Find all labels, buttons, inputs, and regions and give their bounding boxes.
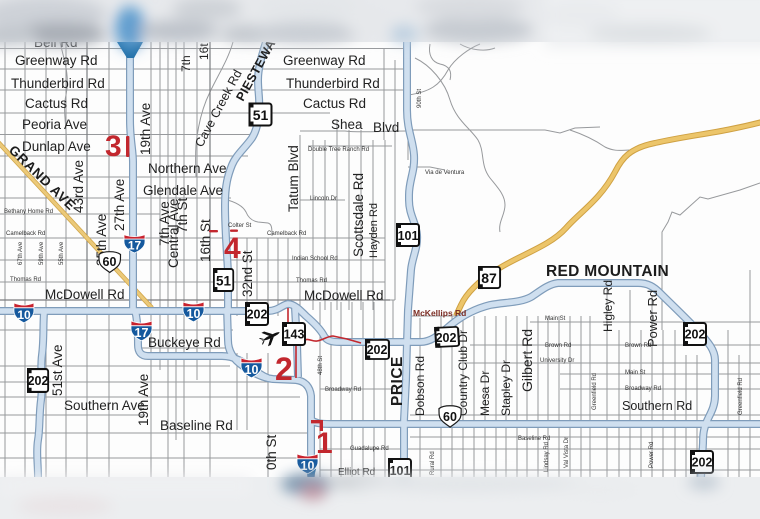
- svg-text:27th Ave: 27th Ave: [112, 179, 127, 231]
- svg-text:Southern Rd: Southern Rd: [622, 399, 692, 413]
- svg-text:Hayden Rd: Hayden Rd: [368, 203, 380, 258]
- svg-text:10: 10: [245, 363, 259, 377]
- svg-text:Baseline Rd: Baseline Rd: [518, 436, 550, 442]
- svg-text:17: 17: [135, 326, 149, 340]
- svg-text:Broadway Rd: Broadway Rd: [625, 386, 661, 392]
- svg-text:Lincoln Dr: Lincoln Dr: [310, 196, 337, 202]
- svg-text:Via de Ventura: Via de Ventura: [425, 170, 465, 176]
- svg-text:10: 10: [301, 459, 315, 473]
- svg-text:Thomas Rd: Thomas Rd: [296, 278, 327, 284]
- svg-text:Main St: Main St: [625, 370, 646, 376]
- svg-text:Power Rd: Power Rd: [645, 290, 660, 347]
- svg-text:Mesa Dr: Mesa Dr: [478, 371, 492, 416]
- svg-text:48th St: 48th St: [318, 356, 324, 375]
- svg-text:Dobson Rd: Dobson Rd: [413, 356, 427, 416]
- svg-text:32nd St: 32nd St: [240, 250, 255, 297]
- svg-text:143: 143: [284, 328, 305, 342]
- svg-text:19th Ave: 19th Ave: [138, 103, 153, 155]
- svg-text:19th Ave: 19th Ave: [136, 374, 151, 426]
- svg-text:Broadway Rd: Broadway Rd: [325, 387, 361, 393]
- svg-text:Guadalupe Rd: Guadalupe Rd: [350, 446, 389, 452]
- svg-text:Stapley Dr: Stapley Dr: [499, 360, 513, 416]
- svg-text:Brown Rd: Brown Rd: [625, 343, 651, 349]
- svg-text:Tatum Blvd: Tatum Blvd: [286, 145, 301, 212]
- svg-text:202: 202: [685, 328, 706, 342]
- svg-text:0th St: 0th St: [264, 434, 279, 470]
- svg-text:Higley Rd: Higley Rd: [601, 280, 615, 332]
- svg-text:51: 51: [216, 274, 232, 289]
- svg-text:202: 202: [247, 308, 268, 322]
- svg-text:90th St: 90th St: [417, 89, 423, 108]
- svg-text:Gilbert Rd: Gilbert Rd: [519, 329, 535, 392]
- svg-text:Brown Rd: Brown Rd: [545, 343, 571, 349]
- svg-text:Greenway Rd: Greenway Rd: [283, 53, 366, 68]
- svg-text:59th Ave: 59th Ave: [39, 241, 45, 265]
- svg-text:Cactus Rd: Cactus Rd: [303, 96, 366, 111]
- svg-text:202: 202: [367, 343, 388, 357]
- svg-text:McDowell Rd: McDowell Rd: [304, 288, 384, 303]
- svg-text:Dunlap Ave: Dunlap Ave: [22, 139, 91, 154]
- svg-text:Greenfield Rd: Greenfield Rd: [592, 373, 598, 410]
- svg-text:16t: 16t: [197, 43, 211, 60]
- svg-text:Baseline Rd: Baseline Rd: [160, 418, 233, 433]
- svg-text:Greenway Rd: Greenway Rd: [15, 53, 98, 68]
- svg-text:Shea: Shea: [331, 117, 363, 132]
- svg-text:202: 202: [692, 456, 713, 470]
- svg-text:Rural Rd: Rural Rd: [430, 451, 436, 475]
- svg-text:University Dr: University Dr: [540, 358, 574, 364]
- svg-text:Southern Ave: Southern Ave: [64, 398, 145, 413]
- svg-text:Lindsay Rd: Lindsay Rd: [544, 442, 550, 472]
- svg-text:10: 10: [187, 307, 201, 321]
- svg-text:4: 4: [224, 232, 241, 265]
- svg-text:Thomas Rd: Thomas Rd: [10, 277, 41, 283]
- svg-text:60: 60: [443, 410, 457, 424]
- svg-text:Peoria Ave: Peoria Ave: [22, 117, 87, 132]
- svg-text:McDowell Rd: McDowell Rd: [45, 287, 125, 302]
- svg-text:Greenfield Rd: Greenfield Rd: [738, 378, 744, 415]
- svg-text:Main St: Main St: [545, 316, 566, 322]
- svg-text:Camelback Rd: Camelback Rd: [6, 231, 45, 237]
- svg-text:Val Vista Dr: Val Vista Dr: [564, 437, 570, 468]
- svg-text:17: 17: [128, 239, 142, 253]
- svg-text:2: 2: [275, 351, 293, 387]
- svg-text:Buckeye Rd: Buckeye Rd: [148, 335, 221, 350]
- svg-text:51: 51: [253, 107, 269, 123]
- svg-text:Power Rd: Power Rd: [649, 442, 655, 468]
- svg-text:McKellips Rd: McKellips Rd: [413, 308, 466, 318]
- svg-text:67th Ave: 67th Ave: [18, 241, 24, 265]
- svg-text:Bethany Home Rd: Bethany Home Rd: [4, 209, 53, 215]
- svg-text:60: 60: [103, 255, 117, 269]
- svg-text:55th Ave: 55th Ave: [59, 241, 65, 265]
- svg-text:16th St: 16th St: [198, 219, 213, 262]
- svg-text:Thunderbird Rd: Thunderbird Rd: [11, 76, 105, 91]
- svg-text:7th St: 7th St: [175, 197, 190, 233]
- svg-text:87: 87: [481, 270, 497, 286]
- svg-text:Camelback Rd: Camelback Rd: [267, 231, 306, 237]
- svg-text:Indian School Rd: Indian School Rd: [292, 256, 338, 262]
- svg-text:7th: 7th: [179, 55, 193, 72]
- svg-text:Scottsdale Rd: Scottsdale Rd: [351, 173, 366, 257]
- svg-text:PRICE: PRICE: [389, 356, 406, 406]
- svg-text:Blvd: Blvd: [373, 120, 399, 135]
- svg-text:Glendale Ave: Glendale Ave: [143, 183, 223, 198]
- svg-text:RED MOUNTAIN: RED MOUNTAIN: [546, 263, 669, 280]
- svg-text:Northern Ave: Northern Ave: [148, 161, 227, 176]
- svg-text:101: 101: [398, 229, 419, 243]
- svg-text:Colter St: Colter St: [228, 223, 252, 229]
- svg-text:Double Tree Ranch Rd: Double Tree Ranch Rd: [308, 147, 369, 153]
- svg-text:3: 3: [105, 130, 122, 163]
- svg-text:1: 1: [316, 427, 333, 460]
- svg-text:202: 202: [436, 331, 457, 345]
- svg-text:Cactus Rd: Cactus Rd: [25, 96, 88, 111]
- svg-text:202: 202: [28, 374, 49, 388]
- svg-text:Thunderbird Rd: Thunderbird Rd: [286, 76, 380, 91]
- svg-text:51st Ave: 51st Ave: [50, 344, 65, 396]
- svg-text:10: 10: [17, 308, 31, 322]
